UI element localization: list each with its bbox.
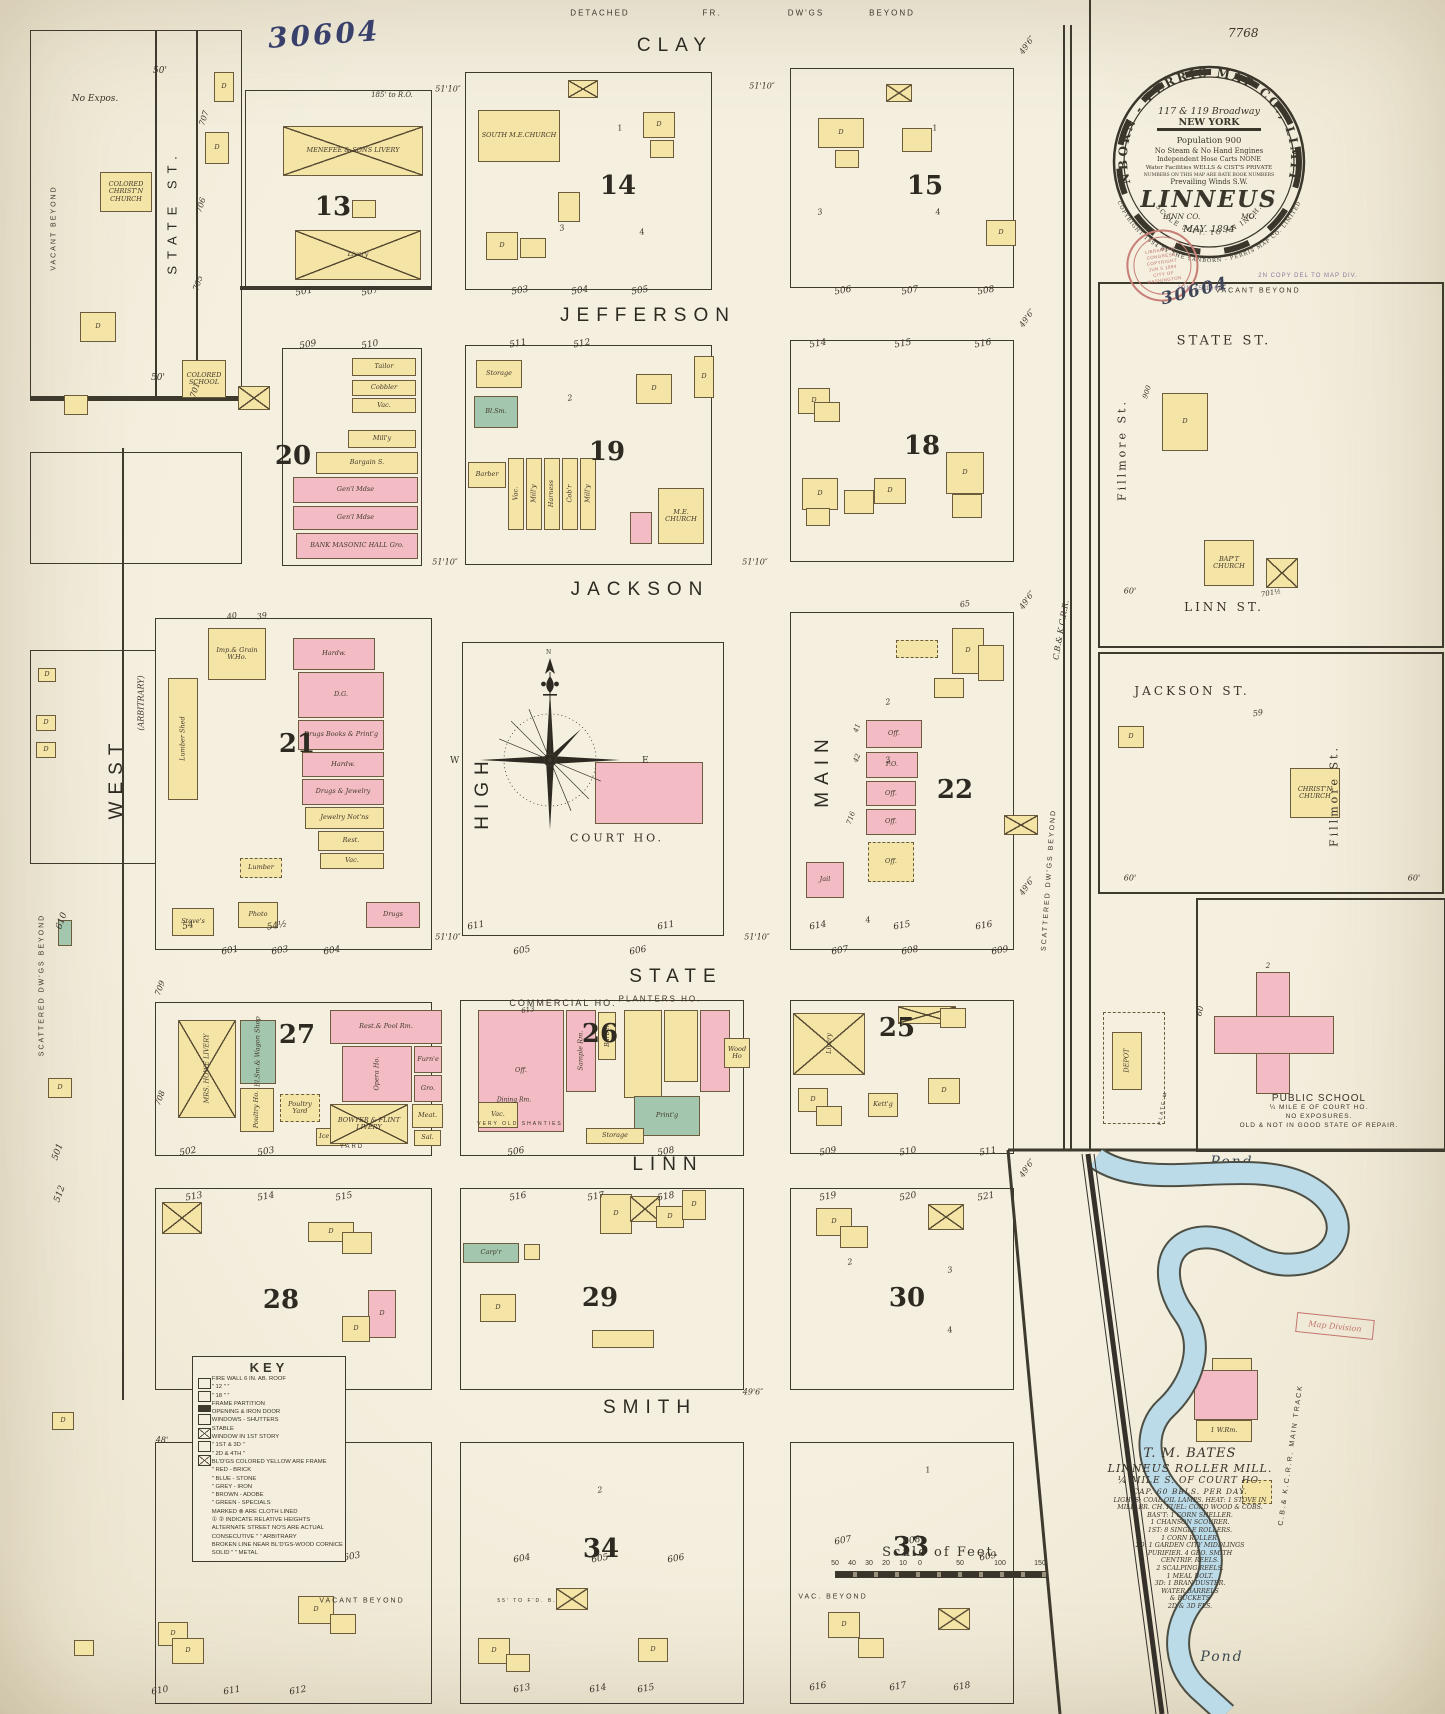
building: Rest.& Pool Rm. (330, 1010, 442, 1044)
building-label: Poultry Ho. (253, 1091, 260, 1128)
river-water (1096, 1158, 1338, 1714)
scale-tick: 30 (865, 1560, 873, 1567)
building-label: Off. (515, 1067, 527, 1074)
building: D (1118, 726, 1144, 748)
building (814, 402, 840, 422)
sanborn-fire-insurance-map-sheet: DCOLORED CHRIST'N CHURCHDCOLORED SCHOOLD… (0, 0, 1445, 1714)
mill-text-line: 3D: 1 BRAN DUSTER. (1060, 1580, 1320, 1588)
map-annotation: 503 (511, 285, 530, 298)
block-number: 30 (889, 1283, 925, 1313)
building (1004, 815, 1038, 835)
block-number: 19 (589, 437, 625, 467)
block-number: 20 (275, 441, 311, 471)
building-label: Rest.& Pool Rm. (359, 1023, 413, 1030)
key-line: ALTERNATE STREET NO'S ARE ACTUAL (212, 1524, 343, 1532)
map-annotation: LINN ST. (1184, 600, 1264, 614)
map-key-legend: KEY FIRE WALL 6 IN. AB. ROOF″ 12 ″ ″″ 18… (192, 1356, 346, 1562)
building: D (828, 1612, 860, 1638)
stamp-city-ny: NEW YORK (1178, 117, 1240, 128)
street-label: SMITH (603, 1397, 697, 1419)
building-label: Carp'r (480, 1249, 501, 1256)
mill-text-line: WATER BARRELS (1060, 1588, 1320, 1596)
building-label: Storage (486, 370, 512, 377)
building (938, 1608, 970, 1630)
building: D (802, 478, 838, 510)
building: SOUTH M.E.CHURCH (478, 110, 560, 162)
mill-text-line: PURIFIER. 4 GEO. SMITH (1060, 1550, 1320, 1558)
inset-left-border (1008, 1150, 1060, 1714)
building: Kett'g (868, 1093, 898, 1117)
building: D (342, 1316, 370, 1342)
stamp-water-facilities: Water Facilities WELLS & CIST'S PRIVATE (1146, 165, 1273, 171)
mill-text-line: CAP. 60 BBLS. PER DAY. (1060, 1487, 1320, 1496)
street-label: WEST (106, 737, 128, 820)
key-cloth-lined-symbol (198, 1455, 211, 1466)
block-number: 26 (582, 1019, 618, 1049)
mill-text-line: 1 CORN ROLLER. (1060, 1535, 1320, 1543)
building: Drugs (366, 902, 420, 928)
map-annotation: 506 (507, 1146, 526, 1159)
map-annotation: 603 (271, 945, 290, 958)
key-line: ″ GREEN - SPECIALS (212, 1499, 343, 1507)
key-building-symbol (198, 1441, 211, 1452)
map-annotation: 504 (571, 285, 590, 298)
key-line: FIRE WALL 6 IN. AB. ROOF (212, 1375, 343, 1383)
mill-text-line: CENTRIF. REELS. (1060, 1557, 1320, 1565)
map-annotation: (ARBITRARY) (137, 675, 146, 730)
building-label: D (810, 1096, 815, 1103)
street-line (1089, 0, 1091, 1150)
map-annotation: 51'10″ (435, 933, 461, 942)
building-label: Gen'l Mdse (337, 486, 374, 493)
building: Gen'l Mdse (293, 477, 418, 503)
key-line: ″ BLUE - STONE (212, 1475, 343, 1483)
street-label: JEFFERSON (560, 305, 736, 327)
map-annotation: 607 (831, 945, 850, 958)
building: Mill'y (526, 458, 542, 530)
building: D (643, 112, 675, 138)
building: MRS. HOWE LIVERY (178, 1020, 236, 1118)
building-label: D (185, 1647, 190, 1654)
building: P.O. (866, 752, 918, 778)
building-label: D (44, 671, 49, 678)
mill-text-line: 1 MEAL BOLT. (1060, 1573, 1320, 1581)
key-line: ″ 18 ″ ″ (212, 1392, 343, 1400)
building: Carp'r (463, 1243, 519, 1263)
key-text-lines: FIRE WALL 6 IN. AB. ROOF″ 12 ″ ″″ 18 ″ ″… (212, 1375, 343, 1558)
building-label: D (613, 1210, 618, 1217)
building: D.G. (298, 672, 384, 718)
key-line: WINDOWS - SHUTTERS (212, 1416, 343, 1424)
map-annotation: 51'10″ (749, 82, 775, 91)
school-text-line: OLD & NOT IN GOOD STATE OF REPAIR. (1196, 1121, 1442, 1130)
key-line: ″ 2D & 4TH ″ (212, 1450, 343, 1458)
map-annotation: 60' (1124, 587, 1136, 596)
fleur-de-lis-icon (541, 658, 559, 696)
building: Drugs & Jewelry (302, 779, 384, 805)
sheet-number: 7768 (1228, 26, 1259, 40)
building-label: D (491, 1647, 496, 1654)
building-label: Gen'l Mdse (337, 514, 374, 521)
map-annotation: 609 (991, 945, 1010, 958)
scale-ruler-bar (835, 1571, 1047, 1578)
building-label: D (1182, 418, 1187, 425)
building: D (928, 1078, 960, 1104)
building: Off. (868, 842, 914, 882)
mill-text-line: 1 CHANSON SCOURER. (1060, 1519, 1320, 1527)
building-label: D (838, 129, 843, 136)
building (664, 1010, 698, 1082)
building-label: Lumber (248, 864, 274, 871)
scale-tick: 10 (899, 1560, 907, 1567)
mill-text-line: MILL, BR. CH. FUEL: CORD WOOD & COBS. (1060, 1504, 1320, 1512)
building-label: D (43, 719, 48, 726)
copy-delivered-note: 2N COPY DEL TO MAP DIV. (1258, 273, 1357, 279)
building-label: D (221, 83, 226, 90)
building-label: D (214, 144, 219, 151)
building (342, 1232, 372, 1254)
mill-text-line: 1ST: 8 SINGLE ROLLERS. (1060, 1527, 1320, 1535)
street-line (240, 286, 432, 290)
map-annotation: 501 (50, 1142, 65, 1162)
map-annotation: 503 (257, 1146, 276, 1159)
building-label: Cobbler (371, 384, 397, 391)
scale-tick: 150 (1034, 1560, 1046, 1567)
building: Cobbler (352, 380, 416, 396)
building-label: Harness (548, 480, 555, 507)
map-annotation: VACANT BEYOND (51, 185, 58, 270)
block-number: 21 (279, 729, 315, 759)
building-label: D (651, 385, 656, 392)
roller-mill-description: T. M. BATESLINNEUS ROLLER MILL.¼ MILE S.… (1060, 1446, 1320, 1611)
street-label: JACKSON (571, 579, 710, 601)
map-annotation: DETACHED (570, 9, 629, 18)
map-annotation: STATE ST. (1177, 334, 1272, 349)
building: Livery (793, 1013, 865, 1075)
building: BAP'T CHURCH (1204, 540, 1254, 586)
building-label: Off. (885, 858, 897, 865)
building: D (368, 1290, 396, 1338)
map-annotation: YARD (340, 1144, 364, 1150)
mill-text-line: 2 SCALPING REELS. (1060, 1565, 1320, 1573)
block-number: 28 (263, 1285, 299, 1315)
street-line (196, 30, 198, 398)
block-number: 18 (904, 431, 940, 461)
building-label: Jewelry Not'ns (320, 814, 368, 821)
map-annotation: 604 (323, 945, 342, 958)
block-number: 14 (600, 171, 636, 201)
building-label: Tailor (375, 363, 394, 370)
scale-tick: 20 (882, 1560, 890, 1567)
building: Poultry Yard (280, 1094, 320, 1122)
building-label: Meat. (418, 1112, 437, 1119)
key-line: CONSECUTIVE ″ ″ ARBITRARY (212, 1533, 343, 1541)
building-label: D (495, 1304, 500, 1311)
building-label: Kett'g (873, 1101, 893, 1108)
map-annotation: 51'10″ (432, 558, 458, 567)
map-annotation: 608 (901, 945, 920, 958)
building: M.E. CHURCH (658, 488, 704, 544)
map-annotation: 49'6″ (743, 1388, 763, 1397)
compass-west-label: W (450, 756, 460, 766)
block-number: 15 (907, 171, 943, 201)
map-annotation: 60' (1408, 874, 1420, 883)
building (844, 490, 874, 514)
building: Storage (586, 1128, 644, 1144)
building: Meat. (412, 1104, 443, 1128)
building-label: D (1128, 733, 1133, 740)
street-line (1070, 25, 1072, 1150)
building-label: D (941, 1087, 946, 1094)
building: Storage (476, 360, 522, 388)
building-label: D (353, 1325, 358, 1332)
map-annotation: 510 (899, 1146, 918, 1159)
building: Off. (866, 781, 916, 806)
map-annotation: Fillmore St. (1328, 745, 1341, 847)
street-line (155, 30, 157, 398)
building: D (172, 1638, 204, 1664)
map-annotation: BEYOND (869, 9, 915, 18)
building-label: Livery (825, 1034, 832, 1055)
mill-text-line: T. M. BATES (1060, 1446, 1320, 1462)
building: Harness (544, 458, 560, 530)
building (558, 192, 580, 222)
building (162, 1202, 202, 1234)
building: Bl.Sm.& Wagon Shop (240, 1020, 276, 1084)
scale-tick: 100 (994, 1560, 1006, 1567)
key-line: ″ 1ST & 3D ″ (212, 1441, 343, 1449)
map-annotation: 511 (979, 1146, 998, 1159)
building: Jail (806, 862, 844, 898)
building (650, 140, 674, 158)
map-annotation: PLANTERS HO. (619, 995, 702, 1004)
building-label: D (962, 469, 967, 476)
building (835, 150, 859, 168)
building-label: D (650, 1646, 655, 1653)
map-annotation: 40 (226, 611, 238, 622)
map-annotation: 49'6″ (1017, 307, 1036, 329)
key-line: BL'D'GS COLORED YELLOW ARE FRAME (212, 1458, 343, 1466)
building-label: Gro. (421, 1085, 435, 1092)
building: Opera Ho. (342, 1046, 412, 1102)
building-label: D (379, 1310, 384, 1317)
map-annotation: 606 (629, 945, 648, 958)
building: Cob'r (562, 458, 578, 530)
building (840, 1226, 868, 1248)
building-label: Mill'y (584, 485, 591, 503)
building: D (1162, 393, 1208, 451)
stamp-engines: No Steam & No Hand Engines (1155, 147, 1264, 155)
street-label: STATE ST. (165, 149, 180, 274)
block-outline (30, 30, 242, 400)
building: D (214, 72, 234, 102)
block-number: 27 (279, 1020, 315, 1050)
map-annotation: JACKSON ST. (1134, 684, 1249, 698)
compass-east-label: E (642, 756, 649, 766)
building-label: Off. (888, 730, 900, 737)
building: Imp.& Grain W.Ho. (208, 628, 266, 680)
building-label: D (998, 229, 1003, 236)
building-label: Off. (885, 818, 897, 825)
key-roof-symbol (198, 1378, 211, 1389)
building: D (80, 312, 116, 342)
stamp-hose-carts: Independent Hose Carts NONE (1157, 155, 1261, 163)
building (352, 200, 376, 218)
building (330, 1614, 356, 1634)
building-label: Barber (476, 471, 499, 478)
building-label: Wood Ho (725, 1046, 749, 1060)
building: D (694, 356, 714, 398)
building (934, 678, 964, 698)
building: D (682, 1190, 706, 1220)
building: D (638, 1638, 668, 1662)
map-annotation: SCATTERED DW'GS BEYOND (39, 914, 46, 1056)
building-label: SOUTH M.E.CHURCH (482, 132, 557, 139)
key-roof-symbol (198, 1391, 211, 1402)
building: D (480, 1294, 516, 1322)
scale-of-feet: Scale of Feet. 5040302010050100150 (835, 1545, 1047, 1578)
building-label: D (667, 1213, 672, 1220)
building: BOWYER & FLINT LIVERY (330, 1104, 408, 1144)
map-annotation: 59 (1252, 708, 1264, 719)
street-line (1063, 25, 1065, 1150)
building (886, 84, 912, 102)
map-annotation: 507 (901, 285, 920, 298)
building: D (874, 478, 906, 504)
building-label: Bargain S. (350, 459, 384, 466)
building (506, 1654, 530, 1672)
building-label: Storage (602, 1132, 628, 1139)
map-annotation: 48' (156, 1436, 168, 1445)
building: D (52, 1412, 74, 1430)
stamp-winds: Prevailing Winds S.W. (1170, 178, 1247, 186)
key-line: SOLID ″ ″ METAL (212, 1549, 343, 1557)
building (940, 1008, 966, 1028)
building: Tailor (352, 358, 416, 376)
building-label: D (170, 1630, 175, 1637)
building-label: Imp.& Grain W.Ho. (209, 647, 265, 661)
school-text-line: ¼ MILE E OF COURT HO. (1196, 1103, 1442, 1112)
map-annotation: 509 (819, 1146, 838, 1159)
stamp-rule (1157, 128, 1261, 131)
scale-title: Scale of Feet. (835, 1545, 1047, 1560)
building-label: Sal. (421, 1134, 433, 1141)
mill-text-line: BAS'T: 1 CORN SHELLER. (1060, 1512, 1320, 1520)
building: D (818, 118, 864, 148)
building: MENEFEE & SONS LIVERY (283, 126, 423, 176)
building (556, 1588, 588, 1610)
building-label: Lumber Shed (179, 717, 186, 762)
building-label: Off. (885, 790, 897, 797)
stamp-population: Population 900 (1177, 136, 1242, 146)
building (520, 238, 546, 258)
block-outline (790, 340, 1014, 562)
copy-delivered-date: JUN 15 1907 (1177, 286, 1223, 292)
building (902, 128, 932, 152)
building: Poultry Ho. (240, 1088, 274, 1132)
building: Vac. (320, 853, 384, 869)
block-number: 13 (315, 192, 351, 222)
map-annotation: DW'GS (788, 9, 824, 18)
street-label: LINN (632, 1154, 703, 1176)
building-label: Vac. (512, 487, 519, 501)
map-annotation: VACANT BEYOND (319, 1598, 404, 1605)
building: Vac. (352, 398, 416, 413)
key-line: MARKED ⊗ ARE CLOTH LINED (212, 1508, 343, 1516)
block-outline (30, 452, 242, 564)
building-label: D (887, 487, 892, 494)
map-annotation: 49'6″ (1017, 589, 1036, 611)
building-label: Livery (348, 251, 369, 258)
building-label: Jail (820, 876, 831, 883)
building: Gro. (414, 1075, 442, 1102)
street-label: CLAY (637, 35, 713, 57)
map-annotation: FR. (703, 9, 722, 18)
map-annotation: 501 (295, 286, 314, 299)
map-annotation: 506 (834, 285, 853, 298)
key-line: ″ BROWN - ADOBE (212, 1491, 343, 1499)
building-label: COLORED CHRIST'N CHURCH (101, 181, 151, 202)
key-line: BROKEN LINE NEAR BL'D'GS-WOOD CORNICE (212, 1541, 343, 1549)
building (592, 1330, 654, 1348)
building-label: MENEFEE & SONS LIVERY (306, 147, 399, 154)
scale-tick: 50 (956, 1560, 964, 1567)
map-annotation: 60' (1124, 874, 1136, 883)
building-label: D (817, 490, 822, 497)
building-label: BANK MASONIC HALL Gro. (310, 542, 404, 549)
scale-tick: 0 (918, 1560, 922, 1567)
building-label: Poultry Yard (281, 1101, 319, 1115)
building-label: Opera Ho. (373, 1057, 380, 1091)
building-label: BOWYER & FLINT LIVERY (331, 1117, 407, 1131)
mill-text-line: & BUCKETS (1060, 1595, 1320, 1603)
building-label: DEPOT (1123, 1049, 1130, 1073)
map-annotation: 51'10″ (744, 933, 770, 942)
building: Bl.Sm. (474, 396, 518, 428)
stamp-address: 117 & 119 Broadway (1158, 106, 1261, 117)
building (64, 395, 88, 415)
key-line: ″ 12 ″ ″ (212, 1383, 343, 1391)
building-label: Mill'y (530, 485, 537, 503)
building: D (36, 715, 56, 731)
building-label: D (60, 1417, 65, 1424)
building: Barber (468, 462, 506, 488)
building-label: Hardw. (322, 650, 346, 657)
building: Mill'y (348, 430, 416, 448)
building-label: Drugs (383, 911, 403, 918)
building: Lumber Shed (168, 678, 198, 800)
building-label: Vac. (345, 857, 359, 864)
building (858, 1638, 884, 1658)
school-text-line: NO EXPOSURES. (1196, 1112, 1442, 1121)
building (238, 386, 270, 410)
compass-rose: N W E (440, 632, 660, 888)
map-annotation: C.B.& K.C.R.R. (1051, 599, 1070, 660)
scale-tick: 50 (831, 1560, 839, 1567)
building: D (205, 132, 229, 164)
building (952, 494, 982, 518)
key-title: KEY (195, 1360, 343, 1375)
building: Livery (295, 230, 421, 280)
building: Rest. (318, 831, 384, 851)
map-annotation: 39 (256, 611, 268, 622)
school-text-line: PUBLIC SCHOOL (1196, 1094, 1442, 1103)
map-annotation: 505 (631, 285, 650, 298)
building: D (656, 1206, 684, 1228)
building: Lumber (240, 858, 282, 878)
building-label: D (499, 242, 504, 249)
building: D (946, 452, 984, 494)
